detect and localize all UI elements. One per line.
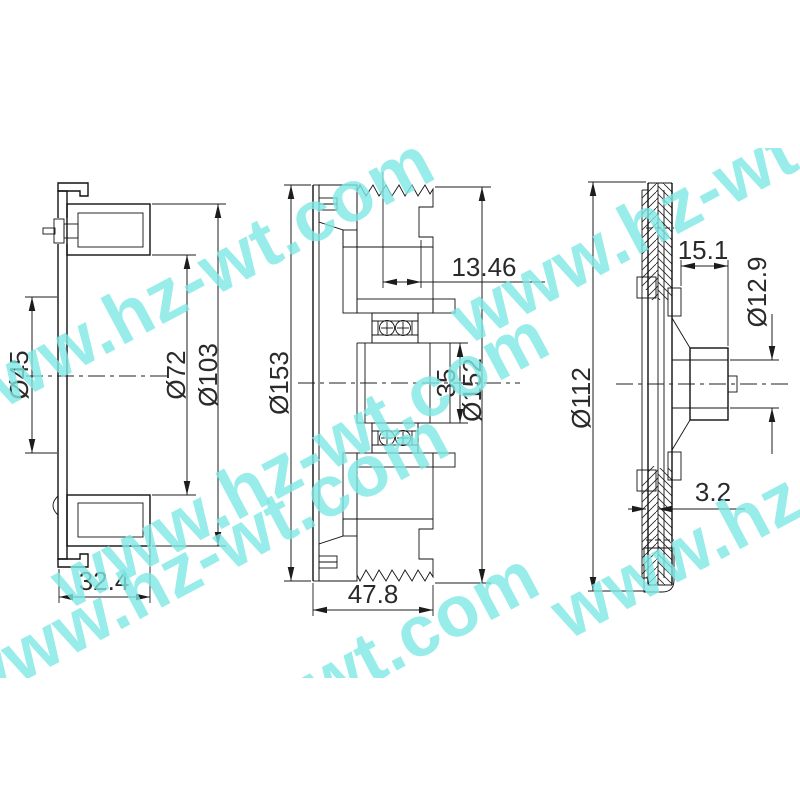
dim-pulley-width: 47.8: [348, 579, 399, 609]
dim-coil-bore: Ø45: [4, 350, 34, 399]
dim-shaft-bore: Ø12.9: [742, 257, 772, 328]
dim-plate-od: Ø112: [566, 367, 596, 429]
dim-coil-depth: 32.4: [79, 566, 130, 596]
clutch-assembly-drawing: Ø45 Ø72 Ø103 32.4: [0, 0, 800, 800]
dim-plate-thickness: 3.2: [695, 477, 731, 507]
dim-pulley-od-right: Ø152: [457, 358, 487, 422]
plate-hole: [56, 218, 68, 244]
dim-bearing-span: 35: [431, 369, 461, 398]
technical-drawing: Ø45 Ø72 Ø103 32.4: [0, 0, 800, 800]
dim-coil-inner: Ø72: [161, 350, 191, 399]
dim-coil-outer: Ø103: [193, 343, 223, 407]
disc-hatch: [648, 183, 658, 300]
paper-background: [0, 0, 800, 800]
dim-hub-protrusion: 15.1: [678, 235, 729, 265]
dim-groove-offset: 13.46: [451, 252, 516, 282]
dim-pulley-od-left: Ø153: [264, 351, 294, 415]
